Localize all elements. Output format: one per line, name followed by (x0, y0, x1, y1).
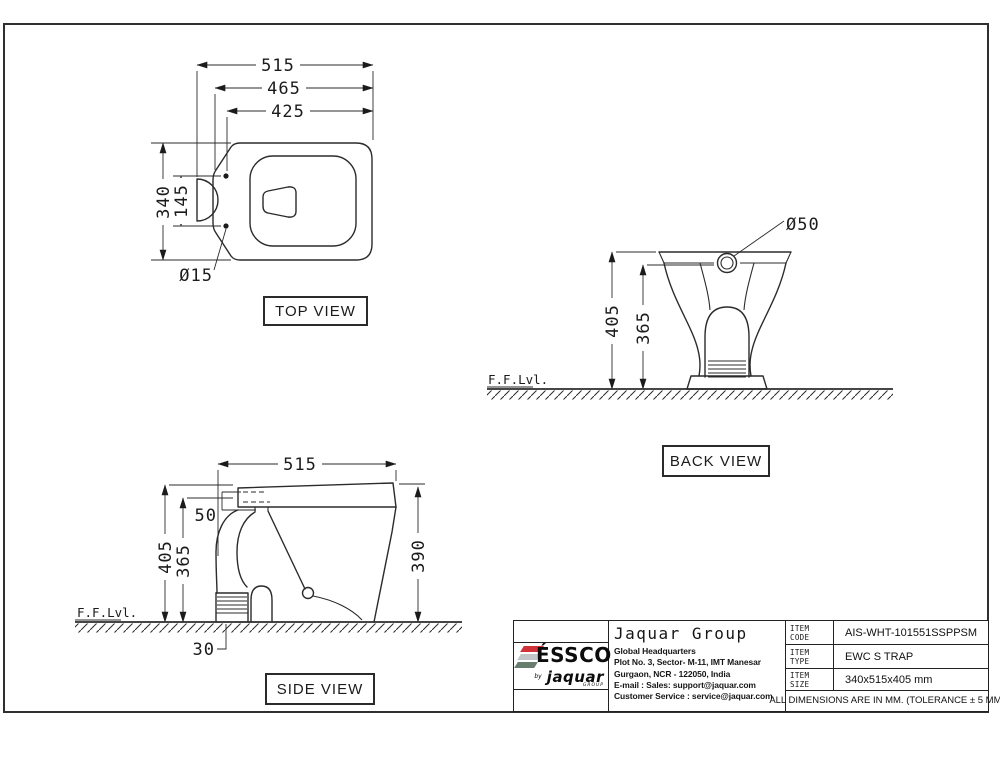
side-view-arch (251, 586, 272, 622)
table-row: ITEM CODE AIS-WHT-101551SSPPSM (786, 621, 988, 645)
side-view-foot-hatch (216, 597, 248, 613)
company-name: Jaquar Group (614, 624, 785, 643)
item-size-label: ITEM SIZE (786, 669, 834, 690)
company-address: Global Headquarters Plot No. 3, Sector- … (614, 646, 785, 702)
back-view-base-hatch (708, 361, 746, 377)
side-view-floor-label: F.F.Lvl. (77, 605, 137, 620)
back-view-floor-hatch (487, 391, 893, 400)
dim-top-dia15: Ø15 (179, 266, 213, 286)
dim-top-145: 145 (172, 184, 192, 218)
dim-back-dia50: Ø50 (786, 215, 820, 235)
table-row: ITEM TYPE EWC S TRAP (786, 645, 988, 669)
side-view-trap-front (216, 510, 238, 593)
top-view-hinge-hole (223, 173, 228, 178)
dim-side-50: 50 (195, 506, 217, 526)
divider (514, 689, 608, 690)
jaquar-byline: by jaquar GROUP (534, 667, 604, 688)
item-type-label: ITEM TYPE (786, 645, 834, 668)
side-view-tank (238, 483, 396, 507)
dim-side-515: 515 (283, 455, 317, 475)
dim-top-465: 465 (267, 79, 301, 99)
essco-logo: ÉSSCO by jaquar GROUP (516, 643, 606, 689)
top-view-water-outline (263, 187, 296, 217)
top-view-label: TOP VIEW (263, 296, 368, 326)
item-type-value: EWC S TRAP (834, 645, 988, 668)
side-view-outlet-circle (303, 588, 314, 599)
table-row: ITEM SIZE 340x515x405 mm (786, 669, 988, 691)
item-code-label: ITEM CODE (786, 621, 834, 644)
back-view-left-side (664, 263, 700, 376)
side-view-label: SIDE VIEW (265, 673, 375, 705)
top-view-hinge-hole (223, 223, 228, 228)
title-block-logo-cell: ÉSSCO by jaquar GROUP (514, 621, 609, 711)
tolerance-note: ALL DIMENSIONS ARE IN MM. (TOLERANCE ± 5… (786, 691, 988, 710)
side-view-trap-inner (237, 512, 255, 587)
side-view-trap-diagonal (268, 511, 305, 589)
dim-back-405: 405 (603, 304, 623, 338)
item-size-value: 340x515x405 mm (834, 669, 988, 690)
top-view-inlet-bump (197, 179, 218, 221)
title-block-item-table: ITEM CODE AIS-WHT-101551SSPPSM ITEM TYPE… (786, 621, 988, 711)
back-view-plinth (687, 376, 767, 389)
back-view-inlet-hole (718, 254, 737, 273)
item-code-value: AIS-WHT-101551SSPPSM (834, 621, 988, 644)
dim-top-425: 425 (271, 102, 305, 122)
dim-side-365: 365 (174, 544, 194, 578)
drawing-sheet: 515 465 425 340 145 Ø15 (0, 0, 1000, 765)
back-view-drawing: 405 365 Ø50 F.F.Lvl. (487, 215, 893, 400)
top-view-rim (250, 156, 356, 246)
dim-side-30: 30 (193, 640, 215, 660)
top-view-body-outline (213, 143, 372, 260)
side-view-drawing: 515 50 405 365 390 (75, 455, 462, 660)
dim-back-365: 365 (634, 311, 654, 345)
side-view-back-edge (374, 507, 396, 622)
title-block: ÉSSCO by jaquar GROUP Jaquar Group Globa… (513, 620, 989, 712)
back-view-label: BACK VIEW (662, 445, 770, 477)
dim-top-515: 515 (261, 56, 295, 76)
essco-wordmark: ÉSSCO (536, 643, 612, 667)
side-view-floor-hatch (75, 624, 462, 633)
title-block-company-cell: Jaquar Group Global Headquarters Plot No… (609, 621, 786, 711)
dim-side-390: 390 (409, 539, 429, 573)
top-view-drawing: 515 465 425 340 145 Ø15 (151, 56, 373, 286)
back-view-floor-label: F.F.Lvl. (488, 372, 548, 387)
back-view-dome (705, 307, 749, 377)
dim-side-405: 405 (156, 540, 176, 574)
back-view-right-side (750, 263, 786, 376)
dim-top-340: 340 (154, 185, 174, 219)
